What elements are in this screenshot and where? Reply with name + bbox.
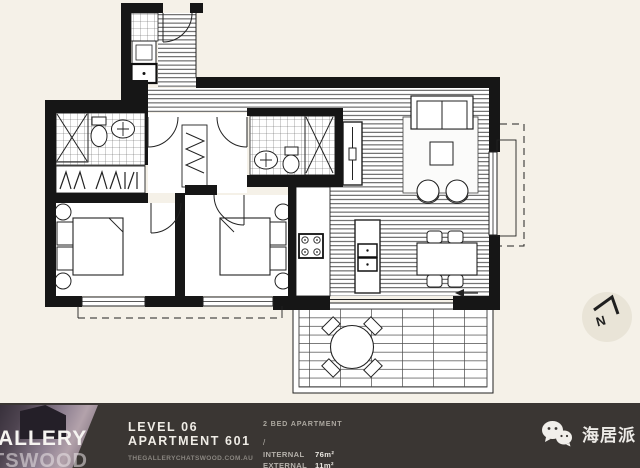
dining-chair (427, 275, 442, 287)
divider-mark: / (263, 439, 342, 447)
sliding-door (330, 300, 453, 304)
logo: ALLERY TSWOOD (0, 405, 104, 468)
logo-text-line2: TSWOOD (0, 450, 88, 468)
wechat-badge: 海居派 (541, 420, 636, 447)
dining-chair (448, 275, 463, 287)
wechat-icon (541, 420, 573, 447)
armchair (446, 180, 468, 202)
pillow (270, 247, 286, 270)
planter-box (497, 140, 516, 236)
laundry-tub (136, 45, 152, 60)
apartment-type: 2 BED APARTMENT (263, 419, 342, 428)
dining-chair (427, 231, 442, 243)
laundry-closet (131, 13, 158, 83)
toilet-2 (283, 155, 299, 173)
living-room (403, 96, 478, 203)
external-area-row: EXTERNAL11m² (263, 461, 342, 468)
toilet-2-tank (285, 147, 298, 155)
logo-text-line1: ALLERY (0, 427, 87, 451)
balcony-table (331, 326, 374, 369)
wardrobe (56, 166, 145, 193)
internal-value: 76m² (315, 450, 334, 459)
apartment-title-block: LEVEL 06 APARTMENT 601 THEGALLERYCHATSWO… (128, 420, 253, 462)
dining-chair (448, 231, 463, 243)
toilet-1-tank (92, 117, 106, 125)
bedside-table (55, 204, 71, 220)
toilet-1 (91, 126, 107, 147)
badge-text: 海居派 (582, 421, 636, 446)
apartment-label: APARTMENT 601 (128, 434, 253, 448)
bathroom-2 (250, 116, 335, 175)
bed-1 (73, 218, 123, 275)
dining-table (417, 243, 477, 275)
internal-area-row: INTERNAL76m² (263, 450, 342, 459)
coffee-table (430, 142, 453, 165)
apartment-details-block: 2 BED APARTMENT / INTERNAL76m² EXTERNAL1… (263, 419, 342, 468)
balcony (293, 303, 493, 393)
external-label: EXTERNAL (263, 461, 315, 468)
external-value: 11m² (315, 461, 334, 468)
floor-plan: N (0, 0, 640, 403)
linen-closet (182, 125, 207, 187)
north-arrow-icon: N (582, 292, 632, 342)
bedside-table (55, 273, 71, 289)
screenshot-root: N ALLERY TSWOOD LEVEL 06 APARTMENT 601 T… (0, 0, 640, 468)
armchair (417, 180, 439, 202)
pillow (270, 222, 286, 245)
level-label: LEVEL 06 (128, 420, 253, 434)
bed-2 (220, 218, 270, 275)
pillow (57, 247, 73, 270)
website-url: THEGALLERYCHATSWOOD.COM.AU (128, 455, 253, 462)
pillow (57, 222, 73, 245)
bathroom-1 (56, 113, 145, 165)
internal-label: INTERNAL (263, 450, 315, 459)
footer-bar: ALLERY TSWOOD LEVEL 06 APARTMENT 601 THE… (0, 403, 640, 468)
